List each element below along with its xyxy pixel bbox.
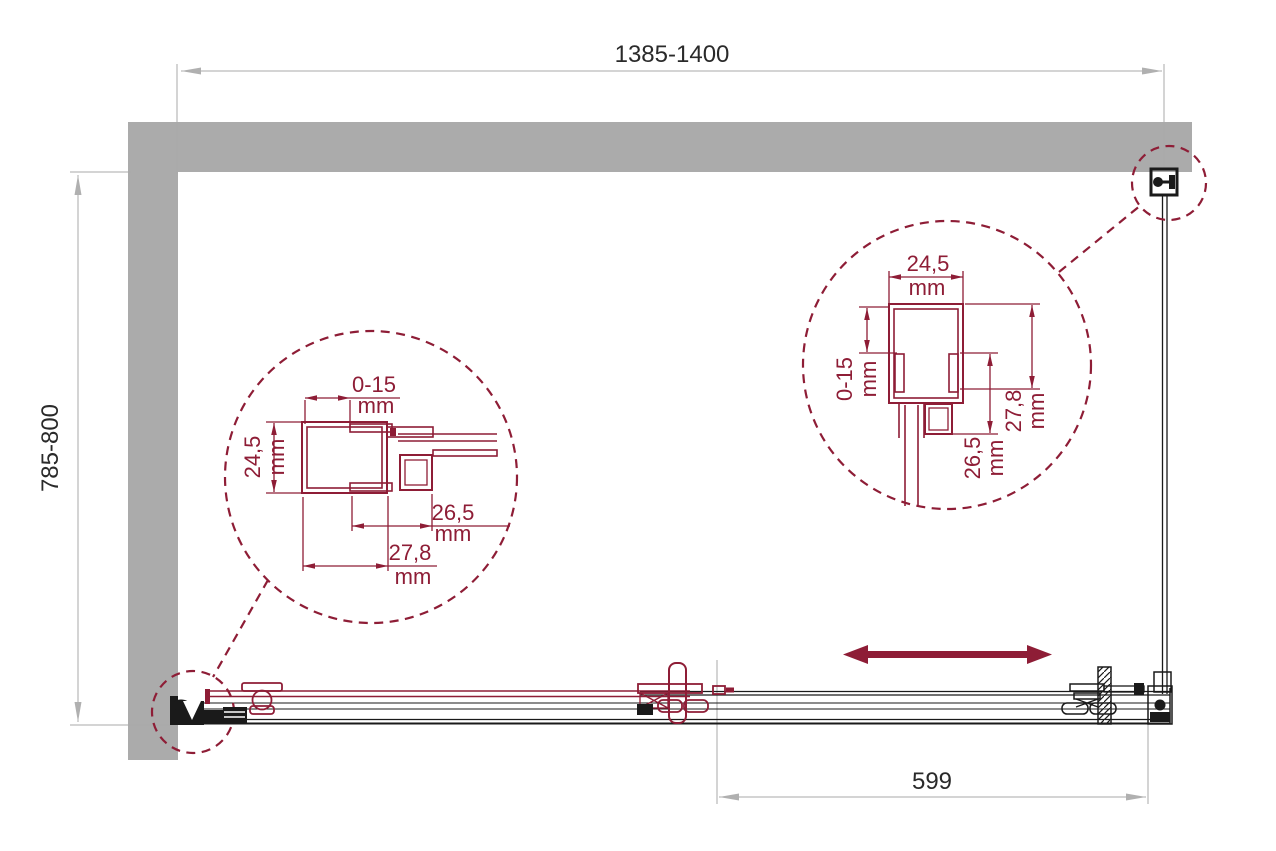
detail-left-depth-outer-value: 27,8 — [389, 540, 432, 565]
drawing-svg: 1385-1400 785-800 599 — [0, 0, 1276, 851]
dim-door-travel: 599 — [717, 660, 1148, 804]
detail-right-depth-inner-unit: mm — [983, 440, 1008, 477]
wall-left — [128, 172, 178, 760]
overall-width-label: 1385-1400 — [615, 41, 730, 68]
detail-left-depth-outer-unit: mm — [395, 564, 432, 589]
detail-left-depth-inner-unit: mm — [435, 521, 472, 546]
technical-drawing-canvas: 1385-1400 785-800 599 — [0, 0, 1276, 851]
detail-right-profile-width-value: 24,5 — [907, 251, 950, 276]
detail-left-profile-width-unit: mm — [264, 439, 289, 476]
overall-depth-label: 785-800 — [37, 404, 64, 492]
detail-circle-left: 0-15 mm 24,5 mm 26,5 mm 27,8 mm — [213, 331, 517, 677]
detail-right-adjustment-value: 0-15 — [832, 357, 857, 401]
slide-direction-arrow — [843, 645, 1052, 664]
profile-section-left — [302, 422, 497, 493]
fixed-glass-panel — [1163, 196, 1168, 694]
detail-left-adjustment-unit: mm — [358, 393, 395, 418]
detail-right-profile-width-unit: mm — [909, 275, 946, 300]
support-post — [1098, 667, 1111, 724]
detail-right-depth-inner-value: 26,5 — [960, 437, 985, 480]
detail-left-profile-width-value: 24,5 — [240, 436, 265, 479]
track-assembly — [172, 663, 1172, 724]
detail-right-adjustment-unit: mm — [856, 361, 881, 398]
detail-right-depth-outer-unit: mm — [1024, 393, 1049, 430]
detail-right-depth-outer-value: 27,8 — [1001, 390, 1026, 433]
roller-center — [637, 663, 734, 723]
door-travel-label: 599 — [912, 768, 952, 795]
wall-top — [128, 122, 1192, 172]
leader-line-right — [1059, 205, 1141, 272]
profile-section-right — [889, 304, 963, 506]
detail-circle-right: 24,5 mm 0-15 mm 26,5 mm 27,8 mm — [803, 205, 1141, 509]
leader-line-left — [213, 580, 268, 677]
